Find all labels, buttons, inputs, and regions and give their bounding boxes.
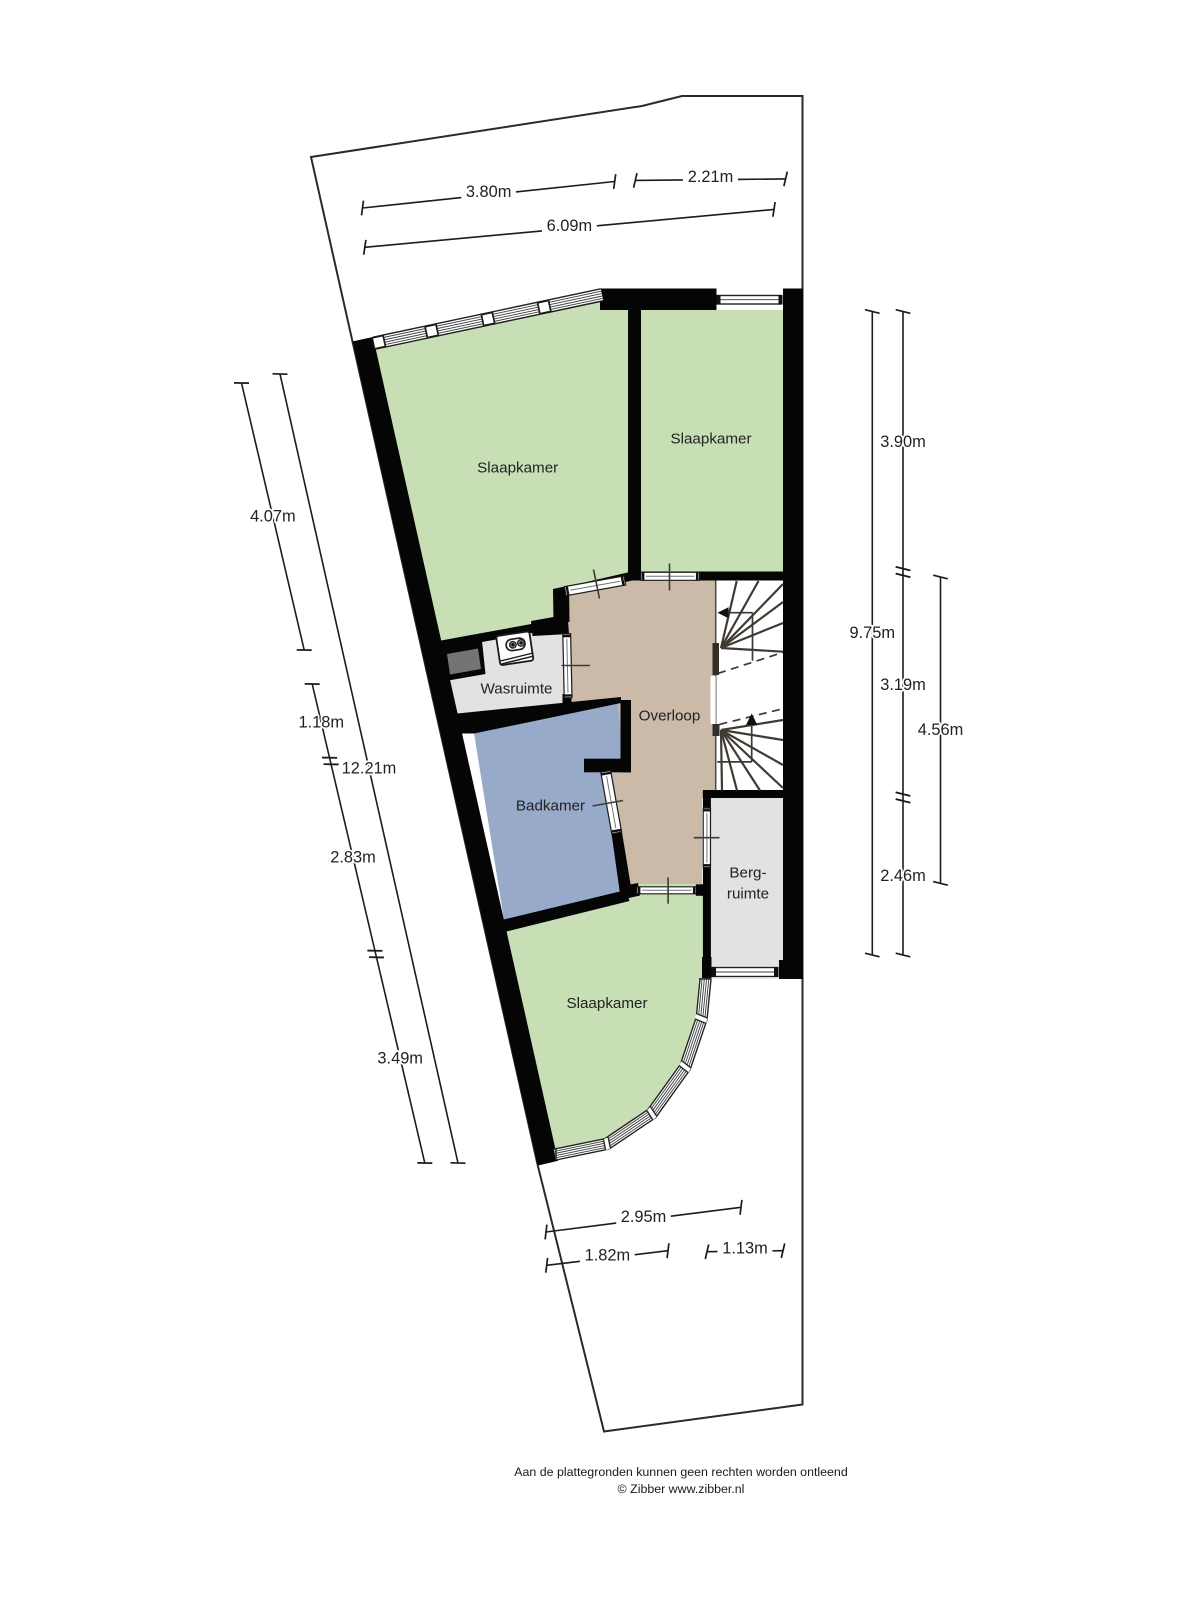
svg-text:9.75m: 9.75m: [850, 624, 896, 642]
svg-text:12.21m: 12.21m: [342, 760, 397, 778]
svg-text:4.56m: 4.56m: [918, 721, 964, 739]
svg-text:ruimte: ruimte: [727, 886, 769, 903]
svg-text:2.95m: 2.95m: [621, 1208, 667, 1226]
svg-text:4.07m: 4.07m: [250, 508, 296, 526]
svg-text:Aan de plattegronden kunnen ge: Aan de plattegronden kunnen geen rechten…: [514, 1465, 848, 1479]
svg-text:1.18m: 1.18m: [299, 714, 345, 732]
svg-text:2.83m: 2.83m: [330, 849, 376, 867]
svg-text:Badkamer: Badkamer: [516, 798, 585, 815]
svg-text:6.09m: 6.09m: [547, 217, 593, 235]
svg-text:2.21m: 2.21m: [688, 168, 734, 186]
svg-text:© Zibber www.zibber.nl: © Zibber www.zibber.nl: [618, 1482, 745, 1496]
svg-text:3.49m: 3.49m: [377, 1050, 423, 1068]
svg-text:1.13m: 1.13m: [722, 1240, 768, 1258]
svg-text:Berg-: Berg-: [729, 865, 766, 882]
svg-text:1.82m: 1.82m: [585, 1247, 631, 1265]
svg-text:Slaapkamer: Slaapkamer: [477, 460, 558, 477]
svg-text:3.19m: 3.19m: [880, 676, 926, 694]
svg-text:3.90m: 3.90m: [880, 433, 926, 451]
svg-text:Slaapkamer: Slaapkamer: [566, 995, 647, 1012]
svg-text:2.46m: 2.46m: [880, 867, 926, 885]
svg-text:3.80m: 3.80m: [466, 183, 512, 201]
svg-text:Overloop: Overloop: [639, 708, 701, 725]
svg-text:Slaapkamer: Slaapkamer: [670, 431, 751, 448]
svg-text:Wasruimte: Wasruimte: [480, 681, 552, 698]
